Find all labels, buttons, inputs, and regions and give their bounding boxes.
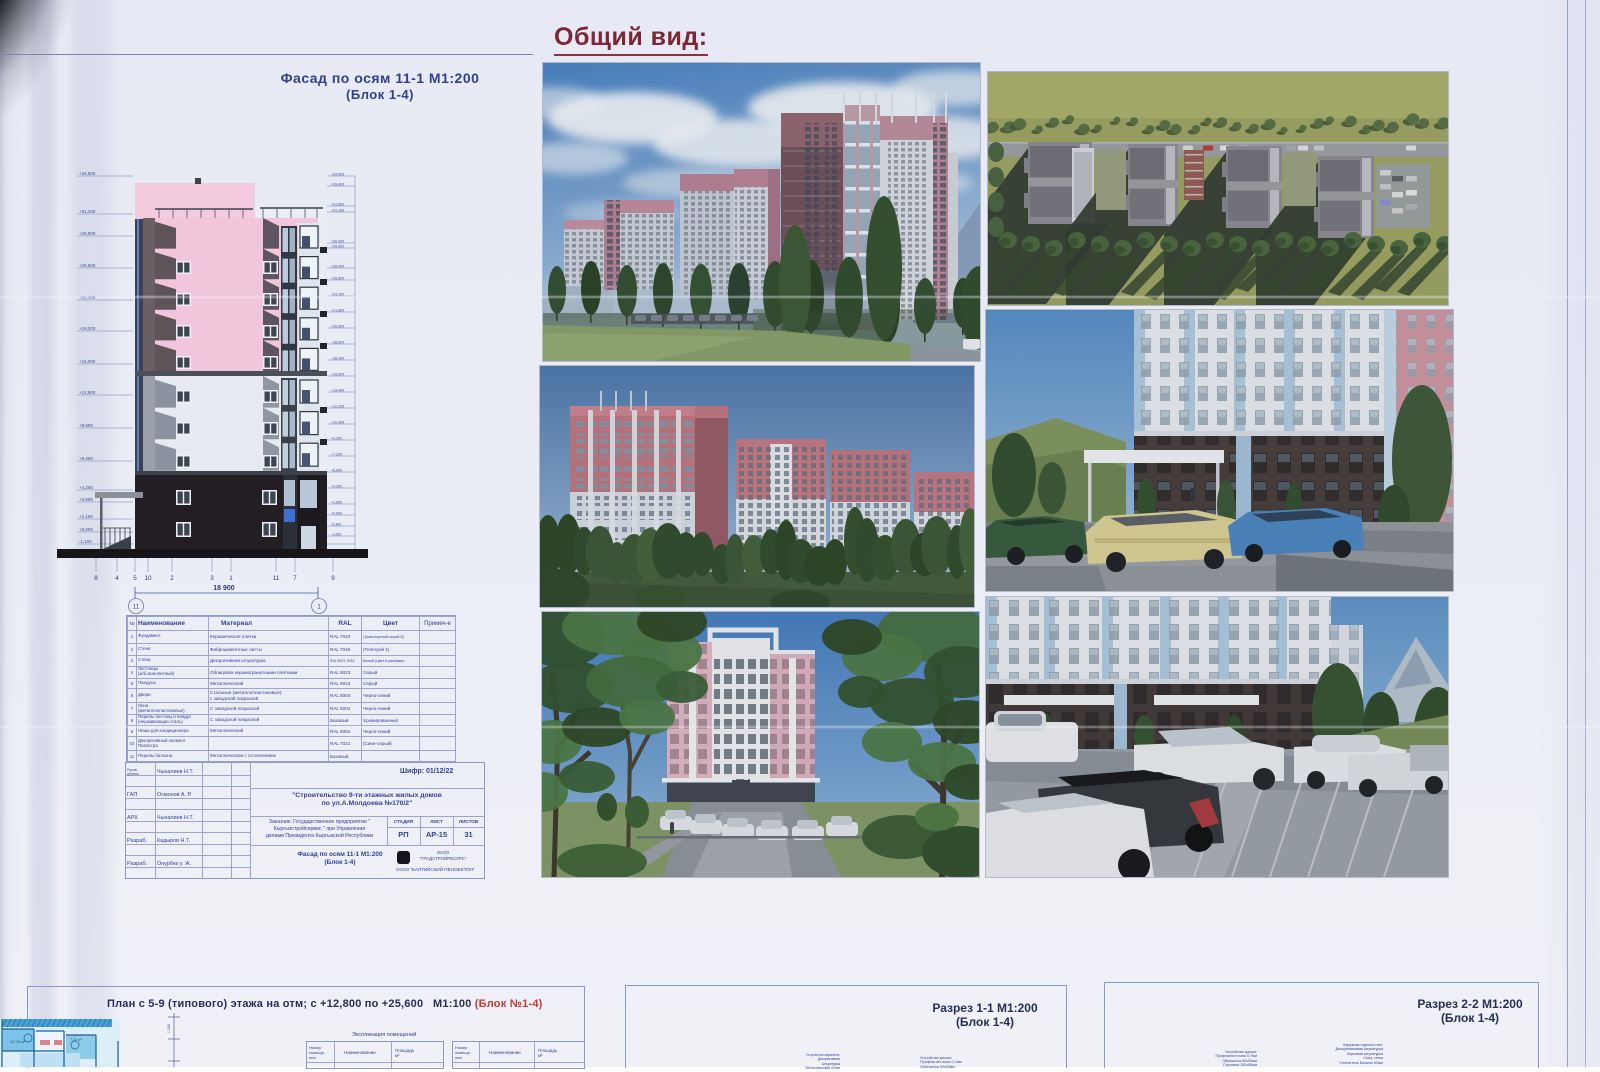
svg-text:-1,100: -1,100 — [79, 539, 92, 544]
svg-text:+4,300: +4,300 — [331, 485, 342, 489]
svg-text:+3,800: +3,800 — [79, 497, 93, 502]
svg-text:-1,060: -1,060 — [331, 533, 341, 537]
svg-text:+31,800: +31,800 — [331, 203, 344, 207]
svg-text:+18,600: +18,600 — [331, 341, 344, 345]
svg-text:+31,100: +31,100 — [331, 209, 344, 213]
svg-text:+19,200: +19,200 — [79, 326, 96, 331]
svg-text:+5,800: +5,800 — [331, 469, 342, 473]
svg-text:+4,200: +4,200 — [79, 485, 93, 490]
svg-text:+16,000: +16,000 — [79, 359, 96, 364]
svg-text:+29,600: +29,600 — [331, 245, 344, 249]
svg-text:9: 9 — [331, 575, 335, 582]
svg-text:10,76 м²: 10,76 м² — [10, 1039, 26, 1044]
svg-text:8: 8 — [94, 575, 98, 582]
svg-text:10: 10 — [144, 575, 152, 582]
svg-text:+15,600: +15,600 — [331, 373, 344, 377]
svg-text:+13,400: +13,400 — [331, 389, 344, 393]
svg-text:-0,300: -0,300 — [331, 523, 341, 527]
svg-text:+12,200: +12,200 — [331, 405, 344, 409]
svg-text:+30,400: +30,400 — [331, 240, 344, 244]
svg-text:3: 3 — [210, 575, 214, 582]
svg-text:4: 4 — [115, 575, 119, 582]
svg-text:+1,100: +1,100 — [79, 514, 93, 519]
svg-text:+6,400: +6,400 — [79, 456, 93, 461]
svg-text:+2,600: +2,600 — [331, 501, 342, 505]
svg-text:1: 1 — [229, 575, 233, 582]
svg-text:+9,300: +9,300 — [331, 437, 342, 441]
svg-text:+26,400: +26,400 — [331, 265, 344, 269]
svg-text:+33,400: +33,400 — [331, 183, 344, 187]
svg-text:1 200: 1 200 — [167, 1024, 171, 1033]
svg-text:11: 11 — [273, 575, 280, 582]
svg-text:+28,800: +28,800 — [79, 231, 96, 236]
svg-text:+9,600: +9,600 — [79, 423, 93, 428]
svg-text:18 900: 18 900 — [213, 585, 235, 592]
svg-text:+12,800: +12,800 — [79, 390, 96, 395]
svg-text:+25,600: +25,600 — [79, 263, 96, 268]
svg-text:+0,000: +0,000 — [79, 527, 93, 532]
svg-text:+10,400: +10,400 — [331, 421, 344, 425]
svg-text:+34,500: +34,500 — [331, 173, 344, 177]
svg-text:+25,800: +25,800 — [331, 277, 344, 281]
svg-text:+34,500: +34,500 — [79, 171, 96, 176]
svg-text:+31,200: +31,200 — [79, 209, 96, 214]
svg-text:+20,900: +20,900 — [331, 325, 344, 329]
svg-text:+16,400: +16,400 — [331, 357, 344, 361]
svg-text:1: 1 — [317, 605, 321, 611]
svg-text:5: 5 — [133, 575, 137, 582]
svg-text:7,32 м²: 7,32 м² — [70, 1038, 82, 1042]
svg-text:7: 7 — [293, 575, 297, 582]
svg-text:11: 11 — [133, 605, 140, 611]
svg-text:+21,800: +21,800 — [331, 309, 344, 313]
svg-text:+7,200: +7,200 — [331, 453, 342, 457]
svg-text:2: 2 — [170, 575, 174, 582]
svg-text:+0,900: +0,900 — [331, 512, 342, 516]
